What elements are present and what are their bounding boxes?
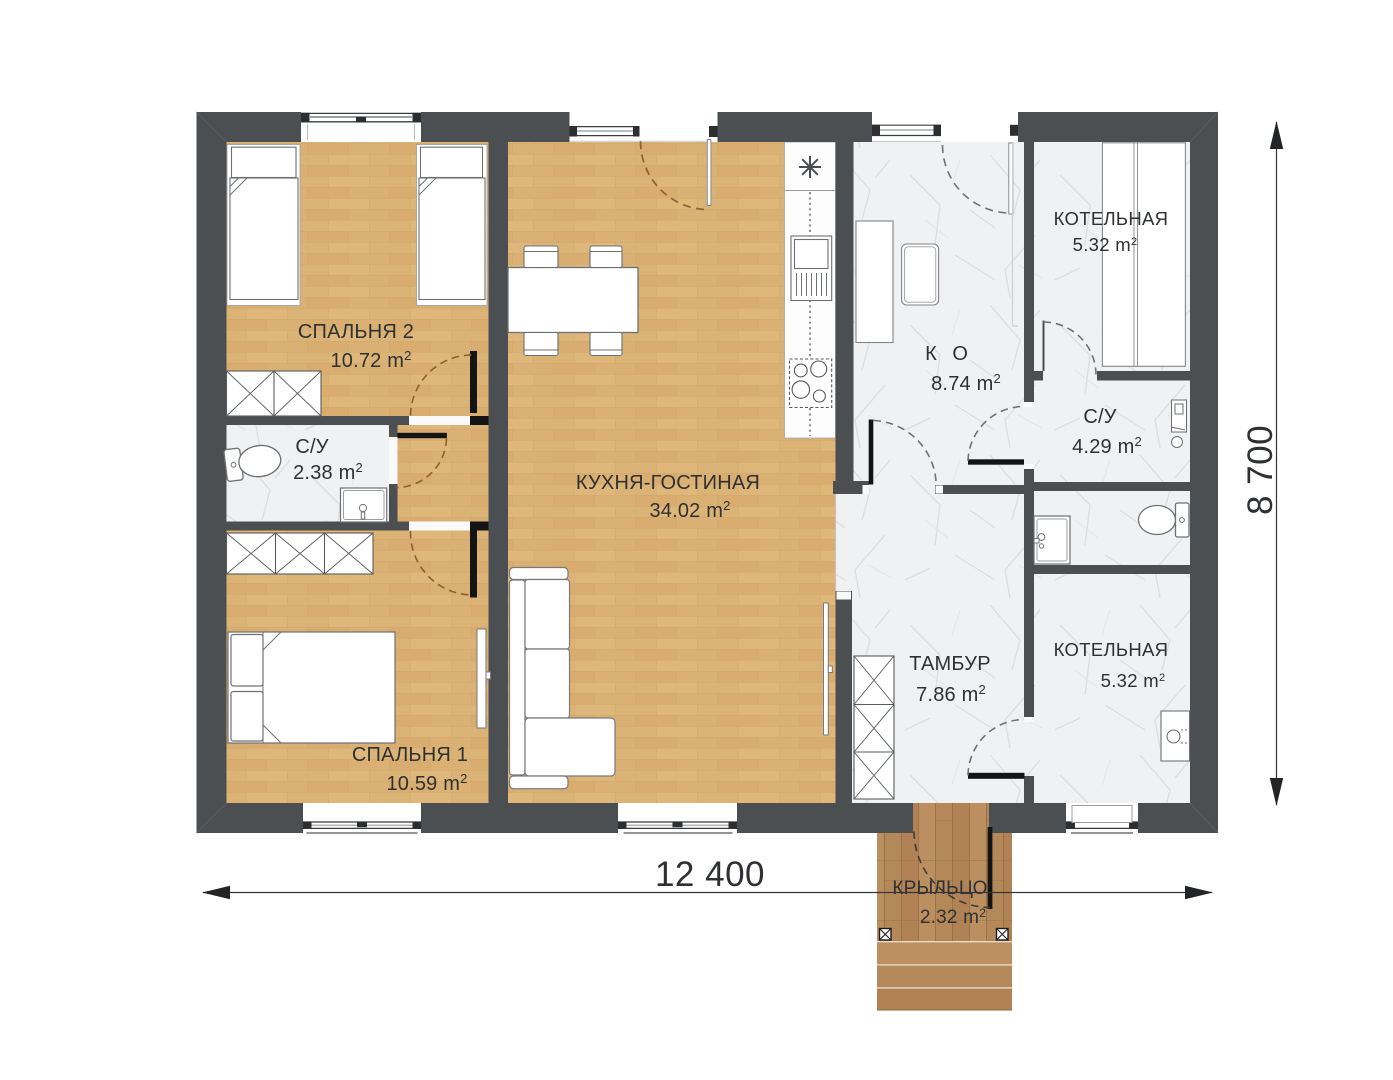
svg-text:КУХНЯ-ГОСТИНАЯ: КУХНЯ-ГОСТИНАЯ <box>576 472 760 494</box>
svg-text:КОТЕЛЬНАЯ: КОТЕЛЬНАЯ <box>1054 639 1169 660</box>
svg-text:34.02 m2: 34.02 m2 <box>649 498 730 522</box>
svg-text:СПАЛЬНЯ 2: СПАЛЬНЯ 2 <box>298 321 414 343</box>
svg-text:7.86 m2: 7.86 m2 <box>916 682 986 706</box>
svg-text:2.32 m2: 2.32 m2 <box>920 906 986 928</box>
svg-text:8.74 m2: 8.74 m2 <box>931 371 1001 395</box>
svg-text:10.72 m2: 10.72 m2 <box>330 348 411 372</box>
svg-text:5.32 m2: 5.32 m2 <box>1101 670 1166 691</box>
svg-text:5.32 m2: 5.32 m2 <box>1073 234 1138 255</box>
svg-text:8 700: 8 700 <box>1241 425 1280 515</box>
svg-text:С/У: С/У <box>295 436 328 458</box>
svg-text:К О: К О <box>925 343 973 365</box>
svg-text:4.29 m2: 4.29 m2 <box>1072 434 1142 458</box>
svg-text:10.59 m2: 10.59 m2 <box>386 771 467 795</box>
svg-text:12 400: 12 400 <box>655 855 765 894</box>
svg-text:С/У: С/У <box>1083 406 1116 428</box>
svg-text:2.38 m2: 2.38 m2 <box>293 460 363 484</box>
svg-text:КРЫЛЬЦО: КРЫЛЬЦО <box>892 878 987 899</box>
svg-text:КОТЕЛЬНАЯ: КОТЕЛЬНАЯ <box>1054 208 1169 229</box>
svg-text:ТАМБУР: ТАМБУР <box>909 653 990 675</box>
svg-text:СПАЛЬНЯ 1: СПАЛЬНЯ 1 <box>352 744 468 766</box>
